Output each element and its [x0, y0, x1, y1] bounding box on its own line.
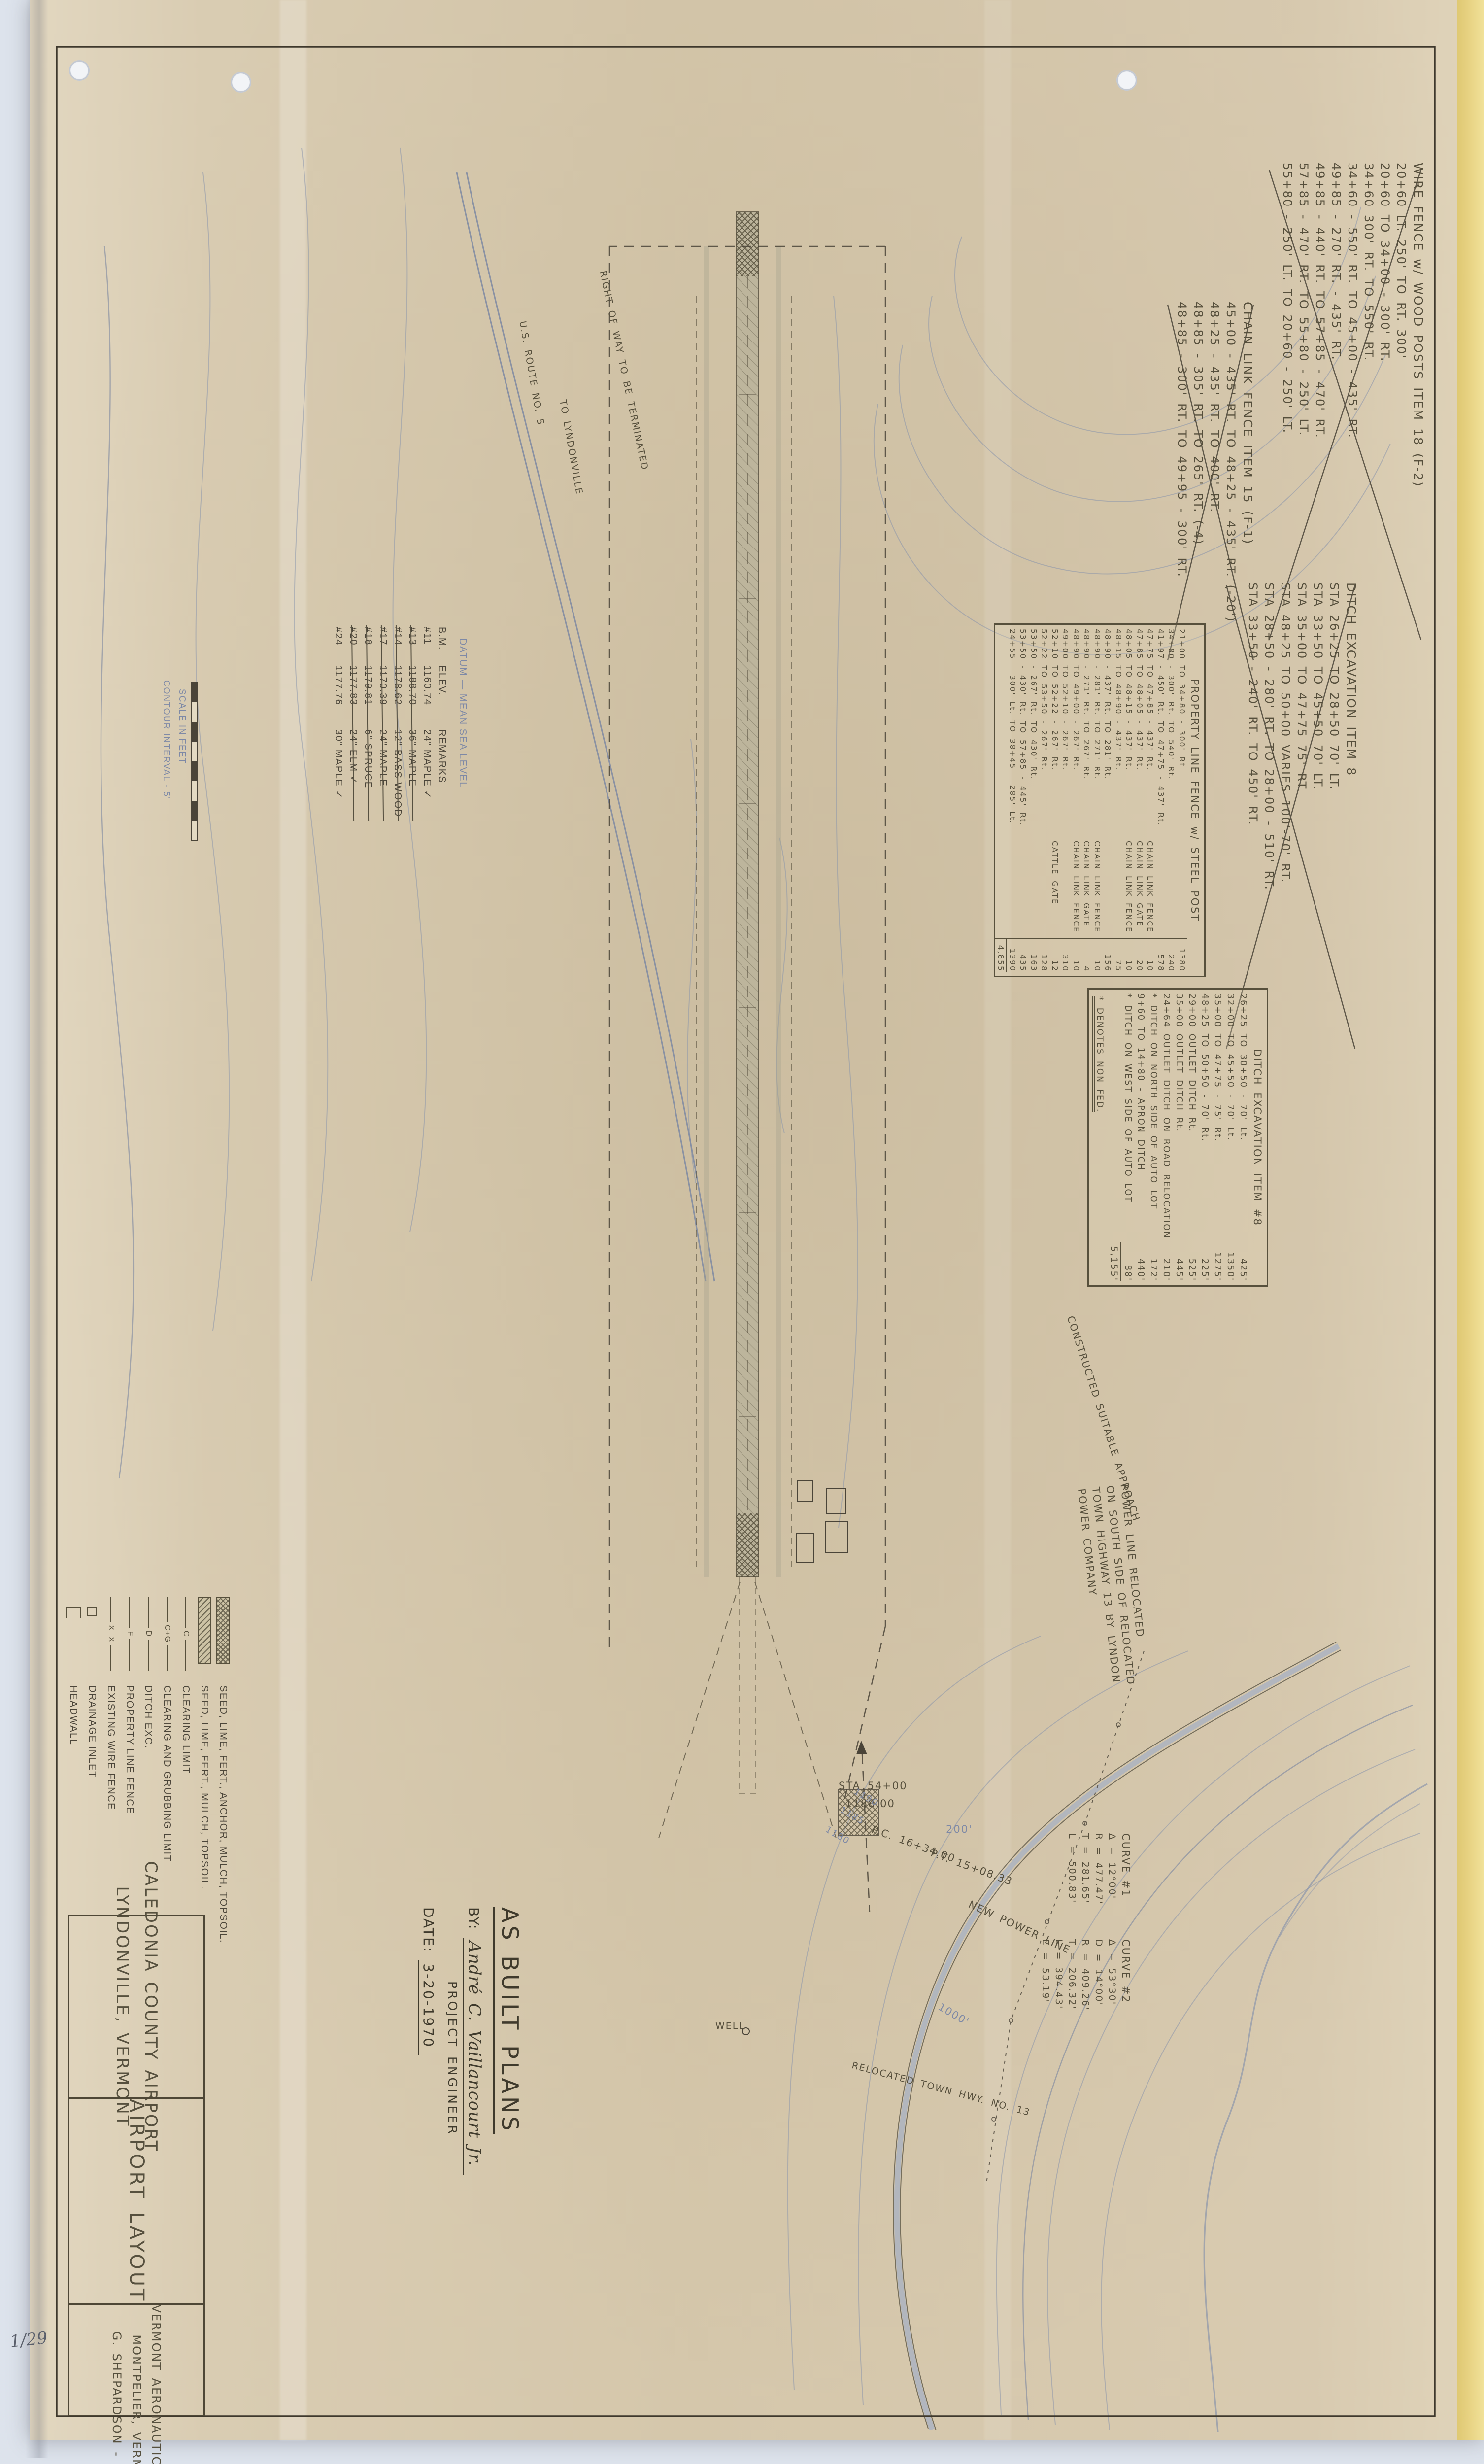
bm-id: #20 — [346, 627, 361, 665]
ditch-table-title: DITCH EXCAVATION ITEM #8 — [1249, 990, 1267, 1285]
rotated-drawing-wrapper: WIRE FENCE w/ WOOD POSTS ITEM 18 (F-2) 2… — [0, 0, 1484, 2458]
cell-qty: 310 — [1060, 938, 1071, 972]
curve-1-data: CURVE #1 Δ = 12°00' R = 477.47' T = 281.… — [1065, 1833, 1133, 1905]
datum-text: DATUM — MEAN SEA LEVEL — [457, 638, 468, 788]
curve-2-data: CURVE #2 Δ = 53°30' D = 14°00' R = 409.2… — [1039, 1939, 1133, 2011]
legend-label: CLEARING AND GRUBBING LIMIT — [162, 1685, 173, 1862]
bm-elev: 1177.76 — [331, 665, 346, 729]
cell-item: CATTLE GATE — [1049, 841, 1060, 938]
cell-length: 1350' — [1224, 1242, 1237, 1281]
drawing-sheet: WIRE FENCE w/ WOOD POSTS ITEM 18 (F-2) 2… — [30, 0, 1484, 2440]
legend-item: SEED, LIME, FERT., ANCHOR, MULCH, TOPSOI… — [214, 1597, 233, 2011]
drainage-inlet-symbol — [88, 1597, 97, 1685]
table-row: 34+80 - 300' Rt. TO 540' Rt.240 — [1166, 625, 1177, 976]
remarks-header: REMARKS — [435, 729, 449, 833]
table-row: 49+00 TO 52+10 - 267' Rt.310 — [1060, 625, 1071, 976]
cell-station: 53+50 - 267' Rt. TO 430' Rt. — [1028, 629, 1039, 841]
ditch-excavation-table: DITCH EXCAVATION ITEM #8 26+25 TO 30+50 … — [1087, 988, 1268, 1287]
as-built-block: AS BUILT PLANS BY: André C. Vaillancourt… — [420, 1907, 523, 2175]
cell-station: 48+90 - 281' Rt. TO 271' Rt. — [1092, 629, 1103, 841]
as-built-date-line: DATE: 3-20-1970 — [420, 1907, 437, 2175]
project-location: LYNDONVILLE, VERMONT — [108, 1886, 136, 2127]
bm-row: #141178.6212" BASS WOOD — [390, 627, 405, 833]
curve-row: R = 409.26' — [1079, 1939, 1092, 2011]
cell-station: 48+90 - 437' Rt. TO 281' Rt. — [1102, 629, 1113, 841]
legend-label: DITCH EXC. — [143, 1685, 154, 1748]
property-fence-table: PROPERTY LINE FENCE w/ STEEL POST 21+00 … — [994, 623, 1206, 977]
legend-label: SEED, LIME, FERT., MULCH, TOPSOIL. — [199, 1685, 210, 1889]
cell-length: 425' — [1237, 1242, 1249, 1281]
table-row: 48+05 TO 48+15 - 437' Rt.CHAIN LINK FENC… — [1123, 625, 1134, 976]
benchmark-table: B.M. ELEV. REMARKS #111160.7424" MAPLE ✓… — [331, 627, 449, 833]
bm-remark: 6" SPRUCE — [361, 729, 375, 833]
note-line: STA 33+50 - 240' RT. TO 450' RT. — [1245, 582, 1261, 890]
table-row: 53+50 - 430' Rt. TO 57+85 - 445' Rt.435 — [1017, 625, 1028, 976]
cell-qty: 156 — [1102, 938, 1113, 972]
cell-station: 48+05 TO 48+15 - 437' Rt. — [1123, 629, 1134, 841]
cell-qty: 10 — [1145, 938, 1155, 972]
relocated-highway — [897, 1646, 1339, 2430]
legend-label: EXISTING WIRE FENCE — [105, 1685, 117, 1810]
note-line: 48+85 - 305' RT. TO 265' RT. (-4) — [1190, 302, 1206, 622]
cell-station: 41+97 - 450' Rt. TO 47+75 - 437' Rt. — [1155, 629, 1166, 841]
table-row: 24+55 - 300' Lt. TO 38+45 - 285' Lt.1390 — [1007, 625, 1018, 976]
bm-elev: 1178.62 — [390, 665, 405, 729]
cell-station: 48+15 TO 48+90 - 437' Rt. — [1113, 629, 1124, 841]
table-total-row: 4,855 — [995, 625, 1007, 976]
bm-row: #201177.8324" ELM ✓ — [346, 627, 361, 833]
table-row: * DITCH ON NORTH SIDE OF AUTO LOT172' — [1147, 990, 1160, 1285]
title-block-agency-cell: VERMONT AERONAUTICS BOARD MONTPELIER, VE… — [69, 2303, 203, 2464]
cell-length: 225' — [1198, 1242, 1211, 1281]
bm-remark: 24" MAPLE ✓ — [420, 729, 435, 833]
cell-station: 53+50 - 430' Rt. TO 57+85 - 445' Rt. — [1017, 629, 1028, 841]
note-line: 57+85 - 470' RT. TO 55+80 - 250' LT. — [1295, 163, 1312, 487]
cell-station: 34+80 - 300' Rt. TO 540' Rt. — [1166, 629, 1177, 841]
table-total-row: 5,155' — [1108, 990, 1121, 1285]
note-line: 49+85 - 440' RT. TO 57+85 - 470' RT. — [1312, 163, 1328, 487]
stream-line — [1204, 1784, 1427, 2432]
bm-elev: 1179.81 — [361, 665, 375, 729]
agency-location: MONTPELIER, VERMONT — [127, 2334, 146, 2464]
clearing-band-north — [776, 246, 781, 1577]
cell-qty: 163 — [1028, 938, 1039, 972]
cell-item: CHAIN LINK FENCE — [1092, 841, 1103, 938]
table-total: 5,155' — [1108, 1242, 1121, 1281]
curve-row: Δ = 12°00' — [1105, 1833, 1118, 1905]
note-line: 45+00 - 435' RT. TO 48+25 - 435' RT. (-2… — [1222, 302, 1239, 622]
cell-qty: 240 — [1166, 938, 1177, 972]
seed-mulch-symbol — [198, 1597, 211, 1685]
bm-row: #181179.816" SPRUCE — [361, 627, 375, 833]
title-block-project-cell: CALEDONIA COUNTY AIRPORT LYNDONVILLE, VE… — [69, 1916, 203, 2097]
cell-qty: 578 — [1155, 938, 1166, 972]
cell-qty: 12 — [1049, 938, 1060, 972]
bm-id: #11 — [420, 627, 435, 665]
table-row: 48+90 - 437' Rt. TO 281' Rt.156 — [1102, 625, 1113, 976]
note-line: 48+85 - 300' RT. TO 49+95 - 300' RT. — [1174, 302, 1190, 622]
cell-qty: 4 — [1081, 938, 1092, 972]
distance-200-label: 200' — [946, 1823, 973, 1835]
bm-id: #24 — [331, 627, 346, 665]
agency-name: VERMONT AERONAUTICS BOARD — [146, 2305, 166, 2464]
curve-title: CURVE #1 — [1118, 1833, 1133, 1905]
bm-remark: 24" MAPLE — [375, 729, 390, 833]
relocated-highway-edges — [893, 1642, 1341, 2430]
table-row: 35+00 TO 47+75 - 75' Rt.1275' — [1211, 990, 1224, 1285]
bm-id: #14 — [390, 627, 405, 665]
cell-station: 52+10 TO 52+22 - 267' Rt. — [1049, 629, 1060, 841]
note-line: 34+60 300' RT. TO 550' RT. — [1360, 163, 1377, 487]
bm-id: #17 — [375, 627, 390, 665]
existing-wire-fence-symbol: XX — [106, 1597, 115, 1685]
cell-qty: 75 — [1113, 938, 1124, 972]
bm-remark: 36" MAPLE — [405, 729, 420, 833]
bm-row: #171170.3924" MAPLE — [375, 627, 390, 833]
title-block-sheet-cell: AIRPORT LAYOUT — [69, 2097, 203, 2303]
bm-row: #111160.7424" MAPLE ✓ — [420, 627, 435, 833]
bm-row: #131188.7036" MAPLE — [405, 627, 420, 833]
table-row: * DITCH ON WEST SIDE OF AUTO LOT88' — [1121, 990, 1134, 1285]
note-line: STA 33+50 TO 45+50 70' LT. — [1310, 582, 1326, 890]
cell-length: 445' — [1173, 1242, 1185, 1281]
table-row: 52+10 TO 52+22 - 267' Rt.CATTLE GATE12 — [1049, 625, 1060, 976]
cell-desc: 24+64 OUTLET DITCH ON ROAD RELOCATION — [1160, 993, 1173, 1242]
curve-row: E = 53.19' — [1039, 1939, 1052, 2011]
station-54-label: STA 54+00 — [839, 1780, 908, 1792]
date-value: 3-20-1970 — [418, 1960, 437, 2055]
clearing-limit-symbol: C — [181, 1597, 190, 1685]
as-built-role: PROJECT ENGINEER — [445, 1981, 460, 2175]
table-row: 24+64 OUTLET DITCH ON ROAD RELOCATION210… — [1160, 990, 1173, 1285]
cell-length: 1275' — [1211, 1242, 1224, 1281]
table-row: 21+00 TO 34+80 - 300' Rt.1380 — [1177, 625, 1187, 976]
engineer-signature: André C. Vaillancourt Jr. — [463, 1938, 484, 2175]
property-fence-table-title: PROPERTY LINE FENCE w/ STEEL POST — [1187, 625, 1204, 976]
table-row: 48+90 - 271' Rt. TO 267' Rt.CHAIN LINK G… — [1081, 625, 1092, 976]
cell-qty: 1380 — [1177, 938, 1187, 972]
cell-desc: 35+00 OUTLET DITCH Rt. — [1173, 993, 1185, 1242]
cell-qty: 20 — [1134, 938, 1145, 972]
curve-title: CURVE #2 — [1118, 1939, 1133, 2011]
chain-link-title: CHAIN LINK FENCE ITEM 15 (F-1) — [1239, 302, 1256, 622]
bm-row: #241177.7630" MAPLE ✓ — [331, 627, 346, 833]
curve-row: R = 477.47' — [1092, 1833, 1105, 1905]
ditch-excavation-notes: DITCH EXCAVATION ITEM 8 STA 26+25 TO 28+… — [1245, 582, 1360, 890]
note-line: STA 35+00 TO 47+75 75' RT. — [1293, 582, 1310, 890]
note-line: 34+60 - 550' RT. TO 45+00 - 435' RT. — [1344, 163, 1360, 487]
table-row: 47+75 TO 47+85 - 437' Rt.CHAIN LINK FENC… — [1145, 625, 1155, 976]
bm-header-row: B.M. ELEV. REMARKS — [435, 627, 449, 833]
date-label: DATE: — [420, 1907, 437, 1952]
legend-label: DRAINAGE INLET — [87, 1685, 98, 1778]
note-line: STA 48+25 TO 50+00 VARIES 100'-70' RT. — [1277, 582, 1293, 890]
note-line: 20+60 LT. 250' TO RT. 300' — [1393, 163, 1409, 487]
property-fence-symbol: F — [125, 1597, 134, 1685]
bm-elev: 1188.70 — [405, 665, 420, 729]
cell-qty: 10 — [1071, 938, 1081, 972]
table-total: 4,855 — [995, 938, 1007, 972]
note-line: 49+85 - 270' RT. - 435' RT. — [1328, 163, 1344, 487]
bm-id: #18 — [361, 627, 375, 665]
cell-qty: 10 — [1092, 938, 1103, 972]
approach-fan — [659, 1582, 836, 1838]
bm-elev: 1160.74 — [420, 665, 435, 729]
table-row: 41+97 - 450' Rt. TO 47+75 - 437' Rt.578 — [1155, 625, 1166, 976]
table-row: 48+25 TO 50+50 - 70' Rt.225' — [1198, 990, 1211, 1285]
as-built-title: AS BUILT PLANS — [493, 1907, 523, 2134]
legend-label: HEADWALL — [68, 1685, 79, 1745]
cell-item: CHAIN LINK FENCE — [1071, 841, 1081, 938]
ditch-exc-symbol: D — [144, 1597, 153, 1685]
cell-item: CHAIN LINK FENCE — [1123, 841, 1134, 938]
note-line: STA 26+25 TO 28+50 70' LT. — [1326, 582, 1342, 890]
table-row: 32+00 TO 45+50 - 70' Lt.1350' — [1224, 990, 1237, 1285]
cell-station: 52+22 TO 53+50 - 267' Rt. — [1039, 629, 1049, 841]
cell-length: 172' — [1147, 1242, 1160, 1281]
us-route-5-road — [457, 172, 714, 1281]
cell-item: CHAIN LINK GATE — [1081, 841, 1092, 938]
curve-row: Δ = 53°30' — [1105, 1939, 1118, 2011]
scale-label: SCALE IN FEET — [177, 689, 187, 764]
cell-qty: 128 — [1039, 938, 1049, 972]
note-line: 48+25 - 435' RT. TO 400' RT. — [1206, 302, 1222, 622]
table-row: 48+90 - 281' Rt. TO 271' Rt.CHAIN LINK F… — [1092, 625, 1103, 976]
bm-id: #13 — [405, 627, 420, 665]
curve-row: L = 500.83' — [1065, 1833, 1079, 1905]
cell-desc: * DITCH ON WEST SIDE OF AUTO LOT — [1121, 993, 1134, 1242]
table-row: 53+50 - 267' Rt. TO 430' Rt.163 — [1028, 625, 1039, 976]
clearing-band-south — [704, 246, 709, 1577]
cell-desc: 29+00 OUTLET DITCH Rt. — [1185, 993, 1198, 1242]
wire-fence-title: WIRE FENCE w/ WOOD POSTS ITEM 18 (F-2) — [1409, 163, 1427, 487]
scale-bar — [191, 683, 197, 840]
cell-desc: 26+25 TO 30+50 - 70' Lt. — [1237, 993, 1249, 1242]
cell-station: 47+75 TO 47+85 - 437' Rt. — [1145, 629, 1155, 841]
curve-row: T = 281.65' — [1079, 1833, 1092, 1905]
bm-header: B.M. — [435, 627, 449, 665]
cell-desc: 35+00 TO 47+75 - 75' Rt. — [1211, 993, 1224, 1242]
curve-row: D = 14°00' — [1092, 1939, 1105, 2011]
table-row: 48+90 TO 49+00 - 267' Rt.CHAIN LINK FENC… — [1071, 625, 1081, 976]
runway — [736, 212, 759, 1794]
cell-item: CHAIN LINK FENCE — [1145, 841, 1155, 938]
elev-header: ELEV. — [435, 665, 449, 729]
legend-label: SEED, LIME, FERT., ANCHOR, MULCH, TOPSOI… — [218, 1685, 229, 1943]
title-block: CALEDONIA COUNTY AIRPORT LYNDONVILLE, VE… — [68, 1915, 205, 2416]
cell-station: 49+00 TO 52+10 - 267' Rt. — [1060, 629, 1071, 841]
table-row: 29+00 OUTLET DITCH Rt.525' — [1185, 990, 1198, 1285]
stream-line-2 — [1280, 1804, 1420, 1937]
table-row: 48+15 TO 48+90 - 437' Rt.75 — [1113, 625, 1124, 976]
as-built-by-line: BY: André C. Vaillancourt Jr. — [465, 1907, 484, 2175]
table-footnote: * DENOTES NON FED. — [1092, 996, 1105, 1112]
bm-remark: 12" BASS WOOD — [390, 729, 405, 833]
well-label: WELL — [715, 2020, 745, 2031]
cell-station: 21+00 TO 34+80 - 300' Rt. — [1177, 629, 1187, 841]
cell-desc: 32+00 TO 45+50 - 70' Lt. — [1224, 993, 1237, 1242]
chain-link-notes: CHAIN LINK FENCE ITEM 15 (F-1) 45+00 - 4… — [1174, 302, 1256, 622]
note-line: 20+60 TO 34+00 - 300' RT. — [1377, 163, 1393, 487]
engineer-name: G. SHEPARDSON - ENGR — [107, 2331, 127, 2464]
table-row: 9+60 TO 14+80 - APRON DITCH440' — [1134, 990, 1147, 1285]
datum-note: DATUM — MEAN SEA LEVEL — [457, 638, 468, 788]
table-row: 47+85 TO 48+05 - 437' Rt.CHAIN LINK GATE… — [1134, 625, 1145, 976]
cell-length: 88' — [1121, 1242, 1134, 1281]
cell-station: 48+90 - 271' Rt. TO 267' Rt. — [1081, 629, 1092, 841]
ditch-notes-title: DITCH EXCAVATION ITEM 8 — [1342, 582, 1360, 890]
headwall-symbol — [66, 1597, 81, 1685]
legend-label: PROPERTY LINE FENCE — [124, 1685, 135, 1814]
by-label: BY: — [466, 1907, 482, 1930]
wire-fence-notes: WIRE FENCE w/ WOOD POSTS ITEM 18 (F-2) 2… — [1279, 163, 1427, 487]
contour-text: CONTOUR INTERVAL - 5' — [162, 680, 171, 799]
cell-station: 48+90 TO 49+00 - 267' Rt. — [1071, 629, 1081, 841]
bm-elev: 1177.83 — [346, 665, 361, 729]
table-row: 35+00 OUTLET DITCH Rt.445' — [1173, 990, 1185, 1285]
cell-qty: 435 — [1017, 938, 1028, 972]
cell-qty: 10 — [1123, 938, 1134, 972]
seed-anchor-mulch-symbol — [216, 1597, 230, 1685]
cell-desc: 9+60 TO 14+80 - APRON DITCH — [1134, 993, 1147, 1242]
cell-station: 47+85 TO 48+05 - 437' Rt. — [1134, 629, 1145, 841]
cell-item: CHAIN LINK GATE — [1134, 841, 1145, 938]
bm-remark: 24" ELM ✓ — [346, 729, 361, 833]
contour-interval-note: CONTOUR INTERVAL - 5' — [161, 680, 171, 799]
buildings — [796, 1481, 847, 1562]
legend-label: CLEARING LIMIT — [180, 1685, 192, 1774]
table-row: 26+25 TO 30+50 - 70' Lt.425' — [1237, 990, 1249, 1285]
cell-length: 440' — [1134, 1242, 1147, 1281]
sheet-title: AIRPORT LAYOUT — [125, 2099, 148, 2303]
cell-length: 210' — [1160, 1242, 1173, 1281]
clearing-grubbing-symbol: C+G — [163, 1597, 171, 1685]
cell-desc: * DITCH ON NORTH SIDE OF AUTO LOT — [1147, 993, 1160, 1242]
bm-elev: 1170.39 — [375, 665, 390, 729]
cell-length: 525' — [1185, 1242, 1198, 1281]
cell-desc: 48+25 TO 50+50 - 70' Rt. — [1198, 993, 1211, 1242]
note-line: STA 28+50 - 280' RT. TO 28+00 - 510' RT. — [1261, 582, 1277, 890]
note-line: 55+80 - 250' LT. TO 20+60 - 250' LT. — [1279, 163, 1295, 487]
scale-text: SCALE IN FEET — [177, 689, 187, 764]
cell-qty: 1390 — [1007, 938, 1018, 972]
cell-station: 24+55 - 300' Lt. TO 38+45 - 285' Lt. — [1007, 629, 1018, 841]
table-row: 52+22 TO 53+50 - 267' Rt.128 — [1039, 625, 1049, 976]
bm-remark: 30" MAPLE ✓ — [331, 729, 346, 833]
